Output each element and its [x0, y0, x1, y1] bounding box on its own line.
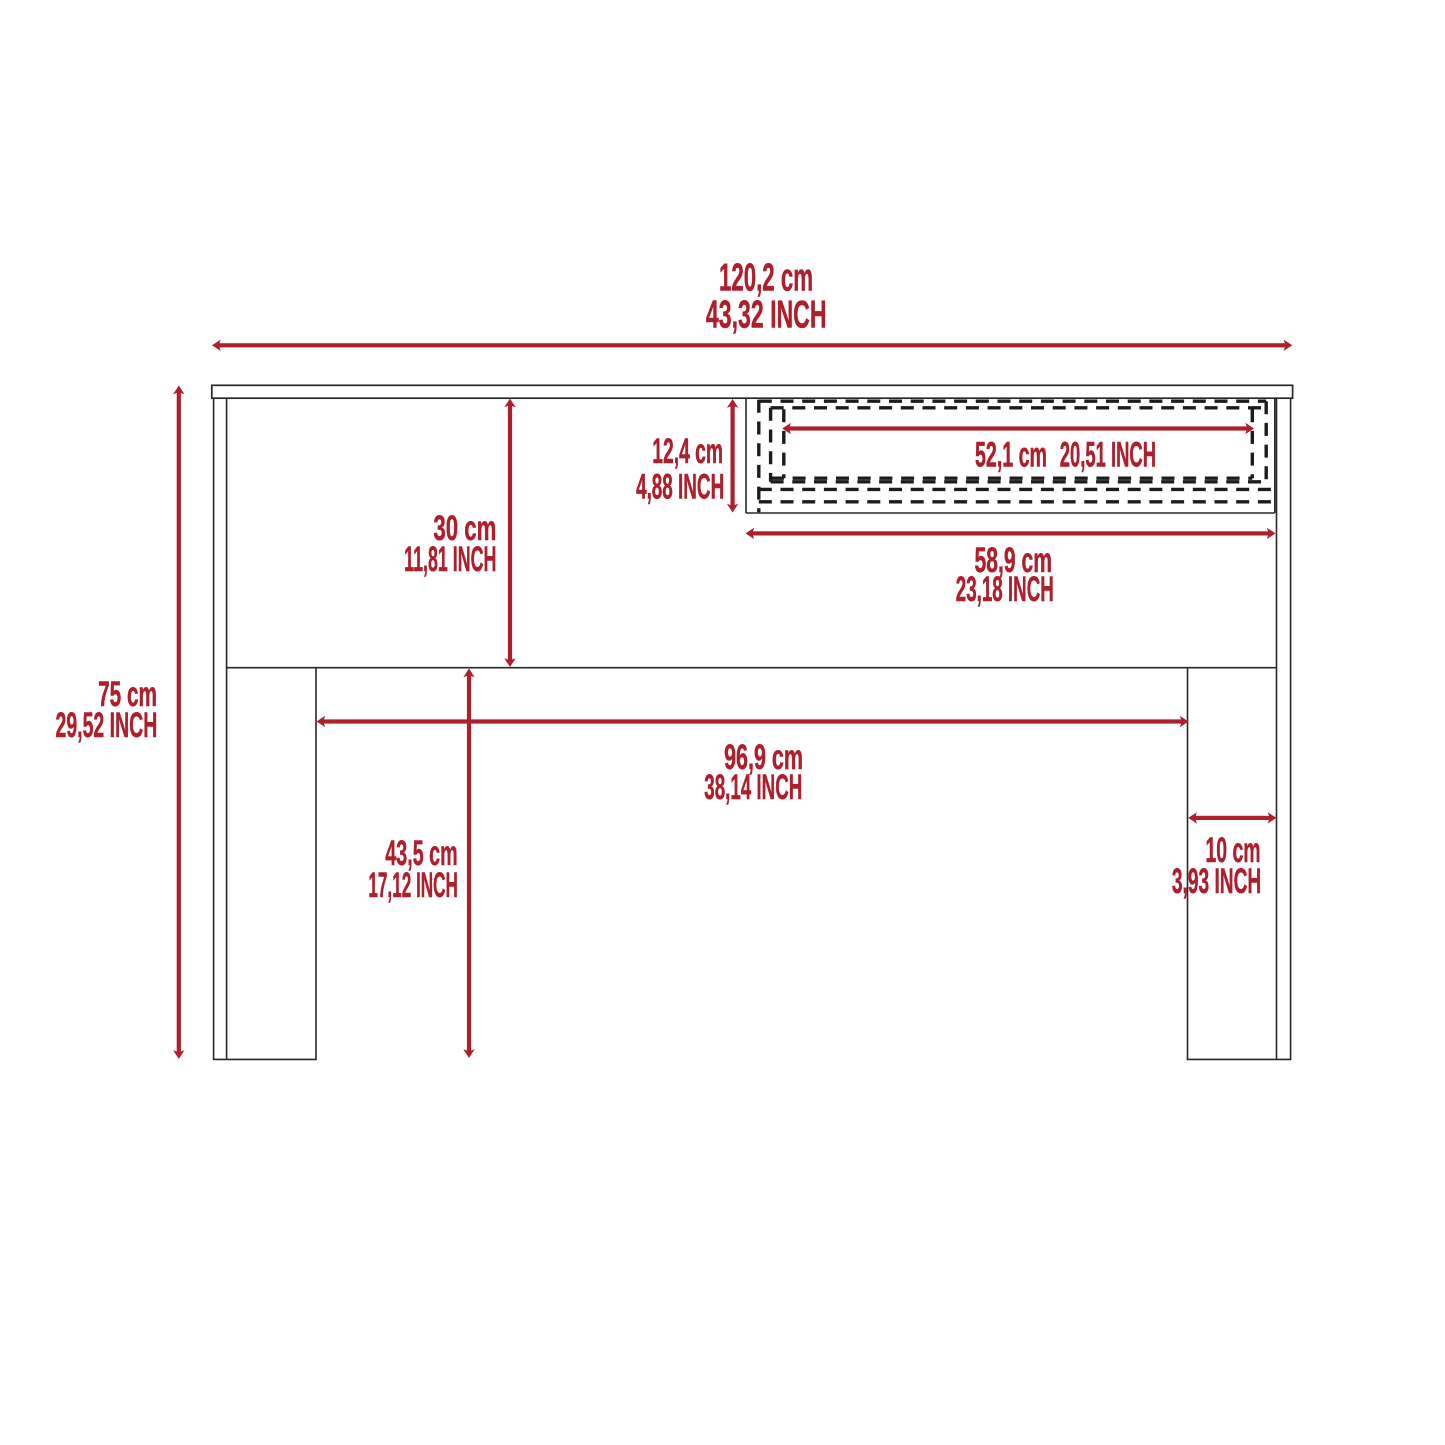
svg-text:23,18 INCH: 23,18 INCH [956, 570, 1054, 610]
svg-text:43,32 INCH: 43,32 INCH [706, 292, 827, 336]
svg-text:11,81 INCH: 11,81 INCH [404, 539, 496, 578]
svg-text:17,12 INCH: 17,12 INCH [368, 865, 458, 904]
svg-text:3,93 INCH: 3,93 INCH [1172, 862, 1261, 902]
svg-text:38,14 INCH: 38,14 INCH [704, 768, 802, 808]
svg-text:4,88 INCH: 4,88 INCH [636, 467, 724, 507]
svg-text:29,52 INCH: 29,52 INCH [56, 706, 158, 746]
svg-text:20,51 INCH: 20,51 INCH [1060, 434, 1156, 474]
svg-text:12,4 cm: 12,4 cm [652, 432, 723, 472]
svg-text:52,1 cm: 52,1 cm [975, 435, 1047, 475]
